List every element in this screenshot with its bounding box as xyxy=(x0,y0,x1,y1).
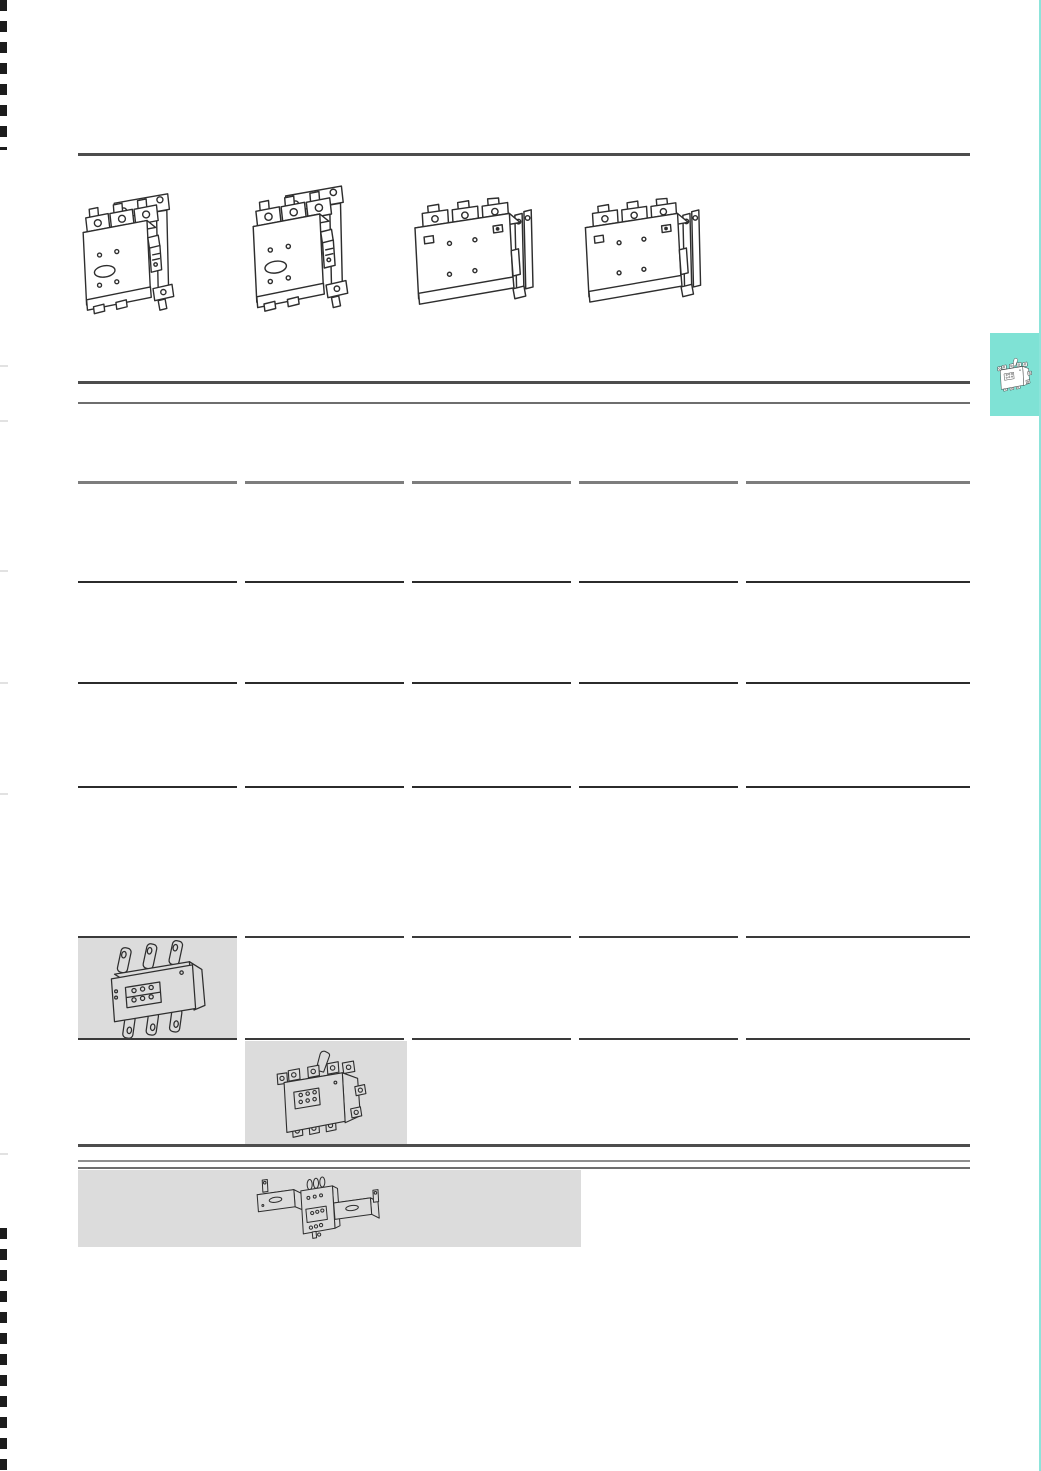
catalog-page xyxy=(0,0,1041,1471)
col-rule xyxy=(412,581,571,583)
col-rule xyxy=(78,581,237,583)
col-rule xyxy=(412,786,571,788)
table-subrule xyxy=(78,402,970,404)
col-rule xyxy=(579,786,738,788)
contactor-block-icon xyxy=(410,198,538,316)
col-rule xyxy=(412,682,571,684)
col-rule xyxy=(245,682,404,684)
col-rule xyxy=(579,1038,738,1040)
col-rule xyxy=(78,936,237,938)
col-rule xyxy=(245,936,404,938)
col-rule xyxy=(78,682,237,684)
col-rule xyxy=(579,481,738,484)
col-rule xyxy=(579,581,738,583)
col-rule xyxy=(78,786,237,788)
col-rule xyxy=(245,481,404,484)
registration-tick xyxy=(0,793,8,795)
col-rule xyxy=(412,936,571,938)
col-rule xyxy=(746,786,970,788)
col-rule xyxy=(412,1038,571,1040)
table-top-rule xyxy=(78,381,970,384)
col-rule xyxy=(746,682,970,684)
contactor-block-large-icon xyxy=(581,198,705,314)
registration-tick xyxy=(0,570,8,572)
col-rule xyxy=(579,682,738,684)
col-rule xyxy=(245,786,404,788)
contactor-frame-mount-icon xyxy=(75,186,181,324)
shaded-cell-overload-relay-1 xyxy=(78,937,237,1039)
overload-relay-reset-lever-icon xyxy=(273,1046,377,1144)
lower-rule-heavy xyxy=(78,1144,970,1147)
col-rule xyxy=(412,481,571,484)
bottom-shaded-band xyxy=(78,1170,581,1247)
col-rule xyxy=(746,481,970,484)
registration-tick xyxy=(0,420,8,422)
col-rule xyxy=(78,481,237,484)
crop-marks-bottom xyxy=(0,1228,7,1471)
contactor-frame-mount-large-icon xyxy=(243,178,357,322)
col-rule xyxy=(245,1038,404,1040)
chapter-thumb-tab xyxy=(990,333,1041,416)
col-rule xyxy=(746,581,970,583)
registration-tick xyxy=(0,1153,8,1155)
col-rule xyxy=(746,1038,970,1040)
overload-relay-strap-terminals-icon xyxy=(88,943,226,1035)
registration-tick xyxy=(0,365,8,367)
registration-tick xyxy=(0,682,8,684)
overload-relay-busbar-icon xyxy=(254,1173,390,1243)
col-rule xyxy=(78,1038,237,1040)
lower-rule-thin xyxy=(78,1160,970,1162)
col-rule xyxy=(245,581,404,583)
col-rule xyxy=(579,936,738,938)
col-rule xyxy=(746,936,970,938)
crop-marks-top xyxy=(0,0,7,150)
shaded-cell-overload-relay-2 xyxy=(245,1041,407,1146)
overload-relay-tab-icon xyxy=(996,344,1036,406)
top-rule xyxy=(78,153,970,156)
band-top-rule xyxy=(78,1167,970,1169)
